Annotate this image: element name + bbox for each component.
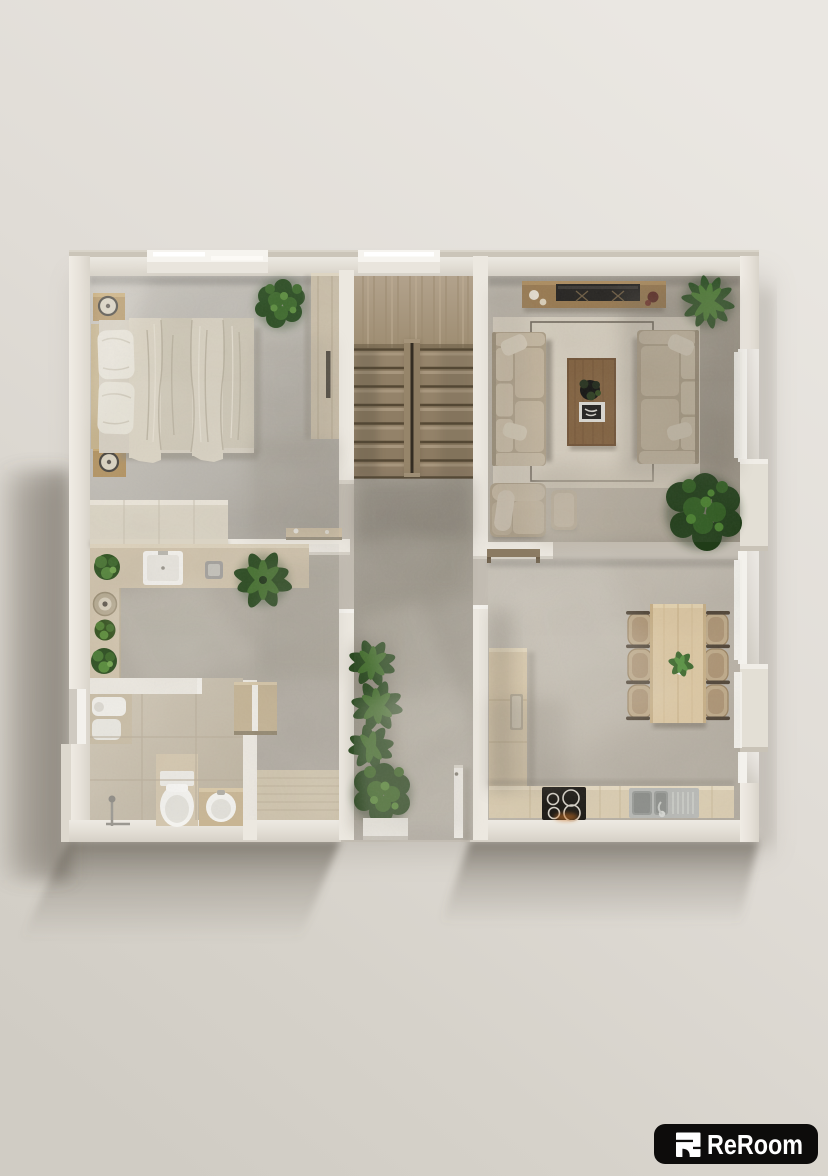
svg-text:ReRoom: ReRoom (707, 1129, 803, 1160)
